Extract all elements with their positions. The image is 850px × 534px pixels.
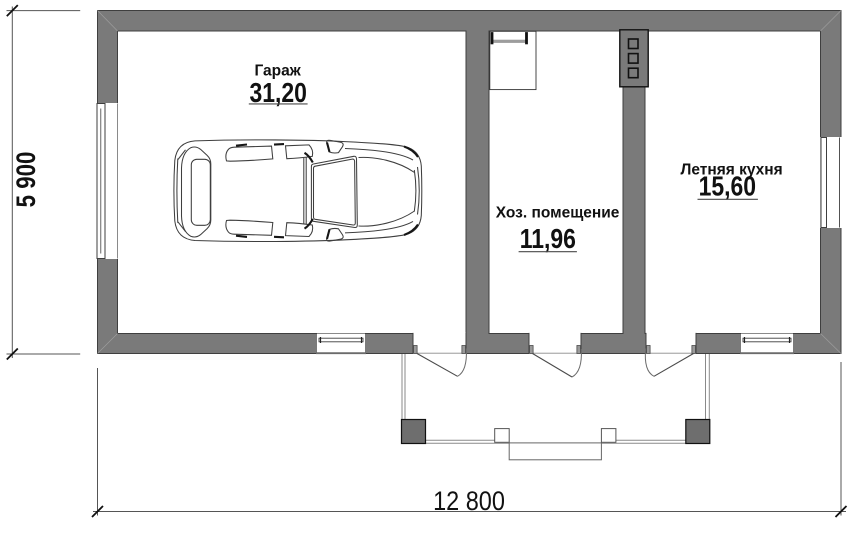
svg-text:11,96: 11,96 [520,224,576,255]
svg-text:Хоз. помещение: Хоз. помещение [496,205,620,222]
svg-text:15,60: 15,60 [699,171,756,202]
svg-text:12 800: 12 800 [433,487,505,517]
svg-text:5 900: 5 900 [12,152,41,208]
svg-text:Гараж: Гараж [254,63,301,80]
